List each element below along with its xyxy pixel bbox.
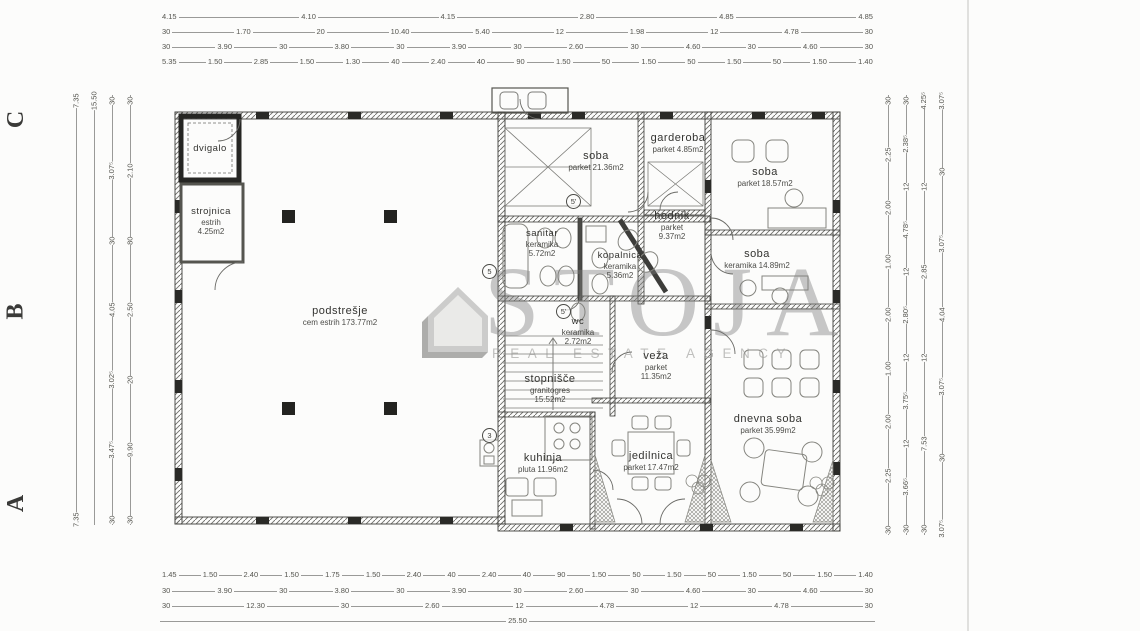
- dim-value: 4.60: [684, 587, 703, 595]
- room-label-veza: veža parket11.35m2: [641, 350, 672, 381]
- dim-col-left-1: 7.357.35: [70, 95, 82, 525]
- dim-row-bottom-total: 25.50: [160, 616, 875, 626]
- grid-letter-a: A: [3, 495, 30, 512]
- dim-col-right-4: 3.07⁵303.07⁵4.043.07⁵303.07⁵: [936, 95, 948, 535]
- dim-value: 3.02⁵: [106, 371, 118, 389]
- dim-value: 12.30: [244, 602, 267, 610]
- room-label-jedilnica: jedilnica parket17.47m2: [622, 450, 679, 472]
- dim-value: 1.50: [298, 58, 317, 66]
- dim-value: 30: [746, 587, 758, 595]
- dim-value: 50: [630, 571, 642, 579]
- dim-value: 2.50: [124, 303, 136, 318]
- room-label-stopnisce: stopnišče granitogres15.52m2: [525, 373, 576, 404]
- dim-value: 7.53: [918, 436, 930, 451]
- dim-value: 30: [394, 587, 406, 595]
- dim-value: 1.40: [856, 571, 875, 579]
- dim-value: 12: [554, 28, 566, 36]
- dim-value: 1.30: [343, 58, 362, 66]
- dim-value: 2.85: [252, 58, 271, 66]
- dim-value: 4.60: [684, 43, 703, 51]
- dim-value: 1.50: [725, 58, 744, 66]
- dim-value: 5.35: [160, 58, 179, 66]
- room-label-soba-1: soba parket21.36m2: [567, 150, 624, 172]
- marker-5-prime-mid: 5': [556, 304, 571, 319]
- dim-value: 3.07⁵: [936, 520, 948, 538]
- room-label-dvigalo: dvigalo: [193, 143, 227, 154]
- grid-letter-c: C: [3, 111, 30, 128]
- dim-value: 30: [900, 97, 912, 105]
- dim-value: 50: [600, 58, 612, 66]
- dim-value: 4.04: [936, 308, 948, 323]
- dim-value: 5.40: [473, 28, 492, 36]
- dim-col-right-2: 302.38⁵124.78⁵122.80⁵123.75⁵123.66⁵30: [900, 95, 912, 535]
- room-label-kopalnica: kopalnica keramika5.36m2: [598, 250, 643, 280]
- dim-value: 3.07⁵: [106, 162, 118, 180]
- dim-value: 30: [394, 43, 406, 51]
- dim-value: 30: [106, 236, 118, 244]
- dim-value: 4.85: [856, 13, 875, 21]
- dim-value: 4.85: [717, 13, 736, 21]
- dim-value: 1.50: [810, 58, 829, 66]
- dim-value: 3.75⁵: [900, 392, 912, 410]
- dim-col-right-3: 4.25⁵122.85127.5330: [918, 95, 930, 535]
- dim-col-right-1: 302.252.001.002.001.002.002.2530: [882, 95, 894, 535]
- dim-row-top-2: 301.702010.405.40121.98124.7830: [160, 27, 875, 37]
- dim-value: 15.50: [88, 91, 100, 110]
- dim-value: 30: [160, 28, 172, 36]
- dim-value: 4.78⁵: [900, 220, 912, 238]
- dim-value: 40: [521, 571, 533, 579]
- dim-value: 30: [277, 587, 289, 595]
- dim-value: 30: [746, 43, 758, 51]
- dim-value: 30: [882, 525, 894, 533]
- dim-value: 50: [771, 58, 783, 66]
- dim-value: 2.38⁵: [900, 135, 912, 153]
- dim-value: 2.40: [242, 571, 261, 579]
- dim-value: 3.07⁵: [936, 235, 948, 253]
- dim-value: 12: [513, 602, 525, 610]
- dim-value: 30: [277, 43, 289, 51]
- grid-letter-b: B: [3, 303, 30, 319]
- dim-col-left-3: 303.07⁵304.053.02⁵3.47⁵30: [106, 95, 118, 525]
- dim-value: 2.25: [882, 468, 894, 483]
- dim-value: 10.40: [389, 28, 412, 36]
- dim-value: 30: [863, 602, 875, 610]
- room-label-soba-2: soba parket18.57m2: [736, 166, 793, 188]
- dim-value: 2.40: [429, 58, 448, 66]
- room-label-wc: wc keramika2.72m2: [562, 316, 594, 346]
- dim-value: 3.90: [450, 43, 469, 51]
- dim-value: 90: [514, 58, 526, 66]
- room-label-podstresje: podstrešje cem estrih173.77m2: [302, 305, 379, 327]
- dim-value: 40: [445, 571, 457, 579]
- dim-row-bottom-2: 303.90303.80303.90302.60304.60304.6030: [160, 586, 875, 596]
- dim-value: 4.78: [782, 28, 801, 36]
- dim-value: 1.98: [628, 28, 647, 36]
- dim-value: 2.60: [567, 587, 586, 595]
- dim-row-top-3: 303.90303.80303.90302.60304.60304.6030: [160, 42, 875, 52]
- dim-value: 4.15: [439, 13, 458, 21]
- dim-value: 4.78: [598, 602, 617, 610]
- dim-value: 1.50: [665, 571, 684, 579]
- dim-value: 4.25⁵: [918, 92, 930, 110]
- floor-plan-page: STOJA REAL ESTATE AGENCY C B A 4.154.104…: [0, 0, 1140, 631]
- dim-value: 3.90: [215, 587, 234, 595]
- dim-value: 3.07⁵: [936, 92, 948, 110]
- dim-value: 3.80: [333, 43, 352, 51]
- dim-value: 1.45: [160, 571, 179, 579]
- dim-value: 25.50: [506, 617, 529, 625]
- dim-value: 30: [160, 587, 172, 595]
- room-label-kuhinja: kuhinja pluta11.96m2: [517, 452, 569, 474]
- dim-value: 4.05: [106, 303, 118, 318]
- dim-value: 30: [882, 97, 894, 105]
- dim-value: 1.40: [856, 58, 875, 66]
- dim-row-bottom-1: 1.451.502.401.501.751.502.40402.4040901.…: [160, 570, 875, 580]
- dim-value: 30: [918, 525, 930, 533]
- dim-value: 2.60: [567, 43, 586, 51]
- dim-value: 80: [124, 236, 136, 244]
- dim-value: 4.60: [801, 587, 820, 595]
- dim-col-left-2: 15.50: [88, 95, 100, 525]
- dim-value: 20: [124, 376, 136, 384]
- dim-value: 3.07⁵: [936, 378, 948, 396]
- room-label-dnevna-soba: dnevna soba parket35.99m2: [734, 413, 803, 435]
- dim-value: 1.50: [815, 571, 834, 579]
- dim-value: 30: [124, 97, 136, 105]
- dim-value: 1.70: [234, 28, 253, 36]
- dim-value: 2.00: [882, 415, 894, 430]
- dim-value: 40: [475, 58, 487, 66]
- dim-row-bottom-3: 3012.30302.60124.78124.7830: [160, 601, 875, 611]
- dim-value: 1.00: [882, 361, 894, 376]
- dim-value: 12: [900, 439, 912, 447]
- dim-value: 12: [900, 182, 912, 190]
- dim-value: 4.15: [160, 13, 179, 21]
- room-label-strojnica: strojnica estrih4.25m2: [191, 206, 231, 236]
- dim-value: 1.50: [282, 571, 301, 579]
- dim-value: 2.25: [882, 147, 894, 162]
- dim-value: 9.90: [124, 442, 136, 457]
- dim-value: 30: [339, 602, 351, 610]
- dim-value: 1.00: [882, 254, 894, 269]
- dim-value: 30: [863, 28, 875, 36]
- dim-value: 3.90: [215, 43, 234, 51]
- dim-value: 20: [315, 28, 327, 36]
- dim-value: 3.47⁵: [106, 441, 118, 459]
- dim-value: 1.50: [554, 58, 573, 66]
- dim-row-top-1: 4.154.104.152.804.854.85: [160, 12, 875, 22]
- dim-value: 7.35: [70, 512, 82, 527]
- dim-value: 2.60: [423, 602, 442, 610]
- dim-value: 12: [918, 182, 930, 190]
- dim-value: 3.66⁵: [900, 477, 912, 495]
- dim-value: 30: [936, 454, 948, 462]
- dim-value: 4.10: [299, 13, 318, 21]
- dim-value: 1.50: [364, 571, 383, 579]
- room-label-garderoba: garderoba parket4.85m2: [651, 132, 706, 154]
- dim-value: 2.80: [578, 13, 597, 21]
- dim-value: 1.50: [590, 571, 609, 579]
- room-label-soba-3: soba keramika14.89m2: [723, 248, 791, 270]
- dim-value: 1.50: [206, 58, 225, 66]
- dim-value: 2.85: [918, 265, 930, 280]
- dim-value: 7.35: [70, 93, 82, 108]
- dim-value: 30: [628, 587, 640, 595]
- dim-value: 12: [900, 268, 912, 276]
- marker-5-left: 5: [482, 264, 497, 279]
- dim-value: 30: [863, 43, 875, 51]
- dim-value: 2.80⁵: [900, 306, 912, 324]
- dim-value: 30: [863, 587, 875, 595]
- dim-row-top-4: 5.351.502.851.501.30402.4040901.50501.50…: [160, 57, 875, 67]
- dim-value: 2.40: [480, 571, 499, 579]
- marker-3: 3: [482, 428, 497, 443]
- dim-value: 12: [918, 354, 930, 362]
- dim-value: 1.50: [740, 571, 759, 579]
- dim-value: 50: [781, 571, 793, 579]
- dim-value: 4.60: [801, 43, 820, 51]
- dim-value: 30: [160, 43, 172, 51]
- scan-paper-edge: [967, 0, 969, 631]
- dim-value: 50: [685, 58, 697, 66]
- dim-value: 30: [160, 602, 172, 610]
- dim-value: 4.78: [772, 602, 791, 610]
- dim-value: 30: [628, 43, 640, 51]
- dim-value: 12: [708, 28, 720, 36]
- room-label-sanitar: sanitar keramika5.72m2: [526, 228, 558, 258]
- dim-value: 40: [389, 58, 401, 66]
- dim-value: 12: [900, 354, 912, 362]
- dim-value: 3.80: [333, 587, 352, 595]
- dim-value: 3.90: [450, 587, 469, 595]
- dim-col-left-4: 302.10802.50209.9030: [124, 95, 136, 525]
- dim-value: 1.50: [201, 571, 220, 579]
- dim-value: 30: [106, 515, 118, 523]
- dim-value: 30: [900, 525, 912, 533]
- dim-value: 30: [124, 515, 136, 523]
- dim-value: 2.00: [882, 201, 894, 216]
- dim-value: 90: [555, 571, 567, 579]
- dim-value: 30: [511, 587, 523, 595]
- dim-value: 30: [511, 43, 523, 51]
- dim-value: 12: [688, 602, 700, 610]
- dim-value: 50: [706, 571, 718, 579]
- dim-value: 2.10: [124, 163, 136, 178]
- dim-value: 1.50: [639, 58, 658, 66]
- dim-value: 1.75: [323, 571, 342, 579]
- marker-5-prime-top: 5': [566, 194, 581, 209]
- room-label-hodnik: hodnik parket9.37m2: [654, 210, 689, 241]
- dim-value: 30: [936, 168, 948, 176]
- dim-value: 30: [106, 97, 118, 105]
- dim-value: 2.00: [882, 308, 894, 323]
- dim-value: 2.40: [405, 571, 424, 579]
